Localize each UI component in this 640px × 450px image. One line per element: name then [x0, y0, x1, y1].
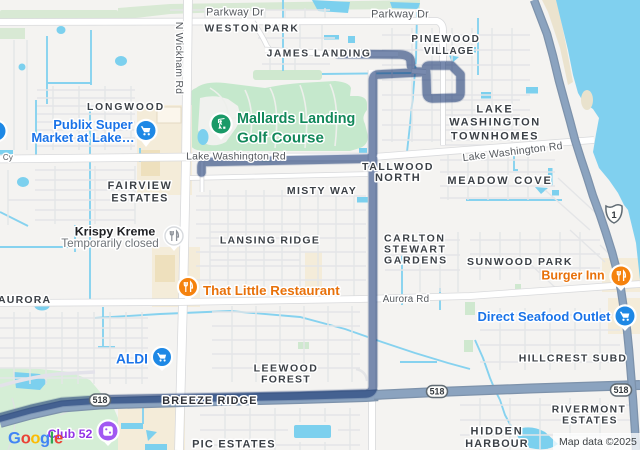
svg-text:PINEWOOD: PINEWOOD	[411, 34, 480, 45]
svg-text:PIC ESTATES: PIC ESTATES	[192, 439, 276, 450]
svg-text:Temporarily closed: Temporarily closed	[61, 237, 158, 250]
svg-text:GARDENS: GARDENS	[384, 255, 448, 267]
svg-text:HARBOUR: HARBOUR	[465, 438, 529, 450]
svg-text:AURORA: AURORA	[0, 294, 51, 306]
svg-text:BREEZE RIDGE: BREEZE RIDGE	[162, 395, 257, 407]
svg-text:SUNWOOD PARK: SUNWOOD PARK	[467, 256, 573, 268]
svg-text:Golf Course: Golf Course	[237, 130, 324, 147]
svg-text:WESTON PARK: WESTON PARK	[205, 24, 300, 35]
svg-text:MISTY WAY: MISTY WAY	[287, 185, 357, 197]
svg-text:LAKE: LAKE	[476, 104, 513, 116]
svg-text:FAIRVIEW: FAIRVIEW	[108, 180, 173, 192]
svg-text:RIVERMONT: RIVERMONT	[552, 405, 626, 416]
svg-text:LANSING RIDGE: LANSING RIDGE	[220, 235, 320, 247]
svg-text:N Wickham Rd: N Wickham Rd	[173, 22, 185, 94]
svg-text:WASHINGTON: WASHINGTON	[449, 117, 541, 129]
svg-text:JAMES LANDING: JAMES LANDING	[267, 49, 372, 60]
svg-text:e: e	[54, 430, 63, 448]
svg-text:That Little Restaurant: That Little Restaurant	[203, 283, 340, 298]
svg-text:ALDI: ALDI	[116, 352, 148, 367]
svg-text:Burger Inn: Burger Inn	[541, 269, 604, 283]
svg-text:Direct Seafood Outlet: Direct Seafood Outlet	[478, 309, 612, 324]
svg-text:518: 518	[614, 385, 629, 395]
svg-text:g: g	[40, 430, 50, 448]
svg-text:VILLAGE: VILLAGE	[424, 46, 474, 57]
svg-text:518: 518	[430, 387, 445, 397]
svg-text:LONGWOOD: LONGWOOD	[87, 102, 165, 113]
svg-text:Map data ©2025: Map data ©2025	[559, 436, 637, 448]
svg-text:NORTH: NORTH	[375, 172, 421, 184]
svg-text:Mallards Landing: Mallards Landing	[237, 111, 355, 127]
svg-text:Parkway Dr: Parkway Dr	[371, 9, 429, 21]
svg-text:Market at Lake…: Market at Lake…	[31, 130, 134, 145]
svg-text:ESTATES: ESTATES	[562, 416, 618, 427]
svg-text:TOWNHOMES: TOWNHOMES	[451, 131, 539, 143]
svg-text:MEADOW COVE: MEADOW COVE	[447, 175, 552, 187]
svg-text:1: 1	[611, 210, 617, 221]
svg-text:HILLCREST SUBD: HILLCREST SUBD	[519, 353, 627, 365]
svg-text:518: 518	[93, 395, 108, 405]
svg-text:FOREST: FOREST	[261, 374, 311, 386]
svg-text:Aurora Rd: Aurora Rd	[383, 294, 429, 305]
svg-text:o: o	[30, 430, 40, 448]
svg-text:HIDDEN: HIDDEN	[471, 426, 524, 438]
svg-text:Lake Washington Rd: Lake Washington Rd	[186, 152, 286, 163]
svg-text:o: o	[21, 430, 31, 448]
svg-text:G: G	[8, 430, 21, 448]
svg-text:Cy: Cy	[3, 153, 13, 162]
svg-text:Parkway Dr: Parkway Dr	[206, 7, 264, 19]
svg-text:ESTATES: ESTATES	[111, 193, 168, 205]
